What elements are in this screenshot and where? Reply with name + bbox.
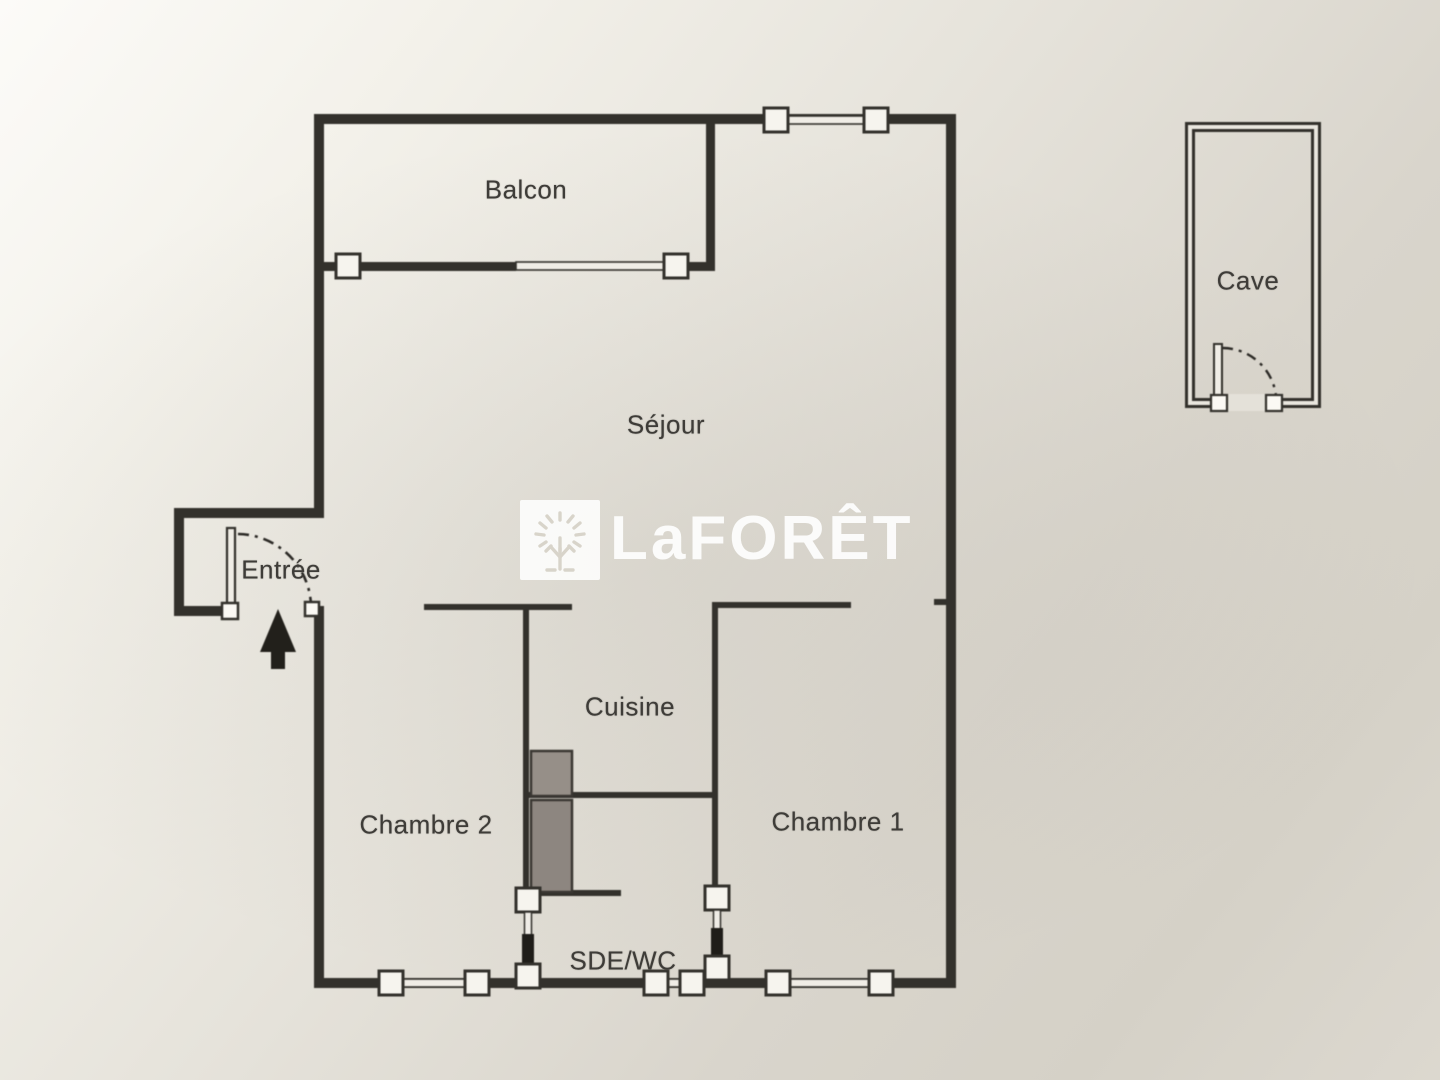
room-label-chambre1: Chambre 1 — [771, 807, 904, 838]
bathroom-fixture-blocks — [531, 751, 572, 892]
brand-logo-box — [520, 500, 600, 580]
floor-plan-photo: { "brand": { "wordmark": "LaFORÊT", "ico… — [0, 0, 1440, 1080]
room-label-chambre2: Chambre 2 — [359, 810, 492, 841]
room-label-balcon: Balcon — [485, 175, 568, 206]
chambre1-door — [705, 886, 729, 980]
room-label-cuisine: Cuisine — [585, 692, 675, 723]
interior-walls — [424, 599, 948, 896]
room-label-entree: Entrée — [241, 555, 321, 586]
entrance-arrow — [260, 609, 296, 669]
brand-logo-text: LaFORÊT — [610, 503, 913, 574]
floor-plan: Balcon Séjour Entrée Cuisine Chambre 2 C… — [0, 0, 1440, 1080]
brand-watermark: LaFORÊT — [520, 500, 940, 580]
room-label-sde-wc: SDE/WC — [570, 946, 677, 977]
sde-wc-door — [516, 888, 540, 988]
room-label-cave: Cave — [1217, 266, 1280, 297]
tree-icon — [520, 500, 600, 580]
cave-door-swing-arc — [1223, 348, 1276, 396]
room-label-sejour: Séjour — [627, 410, 705, 441]
